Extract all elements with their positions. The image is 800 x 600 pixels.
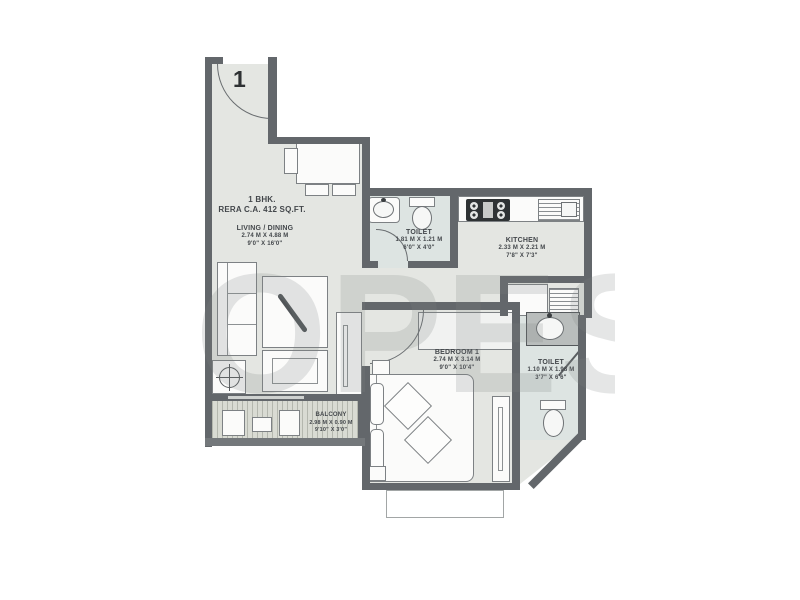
room-dim-ft: 7'8" X 7'3" bbox=[490, 253, 554, 261]
outer-wall-left bbox=[205, 57, 212, 447]
balcony-bottom-wall bbox=[205, 438, 365, 446]
living-label: LIVING / DINING 2.74 M X 4.88 M 9'0" X 1… bbox=[218, 224, 312, 249]
sink-bowl bbox=[561, 202, 577, 217]
utility-left-wall bbox=[500, 276, 508, 316]
armchair-seat bbox=[272, 358, 318, 384]
table-decor-icon bbox=[277, 293, 308, 333]
room-dim-ft: 9'0" X 10'4" bbox=[412, 365, 502, 373]
room-dim-ft: 9'0" X 16'0" bbox=[218, 241, 312, 249]
wc1-bowl-icon bbox=[412, 206, 432, 230]
dining-table bbox=[296, 140, 360, 184]
pillow bbox=[370, 429, 384, 471]
balcony-label: BALCONY 2.98 M X 0.90 M 9'10" X 3'0" bbox=[302, 412, 360, 434]
decor-cross-v bbox=[229, 364, 230, 391]
room-name: KITCHEN bbox=[490, 236, 554, 245]
sofa-back-line bbox=[227, 263, 228, 355]
sofa-cushion-line-2 bbox=[227, 324, 256, 325]
tv-panel bbox=[343, 325, 348, 387]
utility-sink bbox=[549, 288, 579, 315]
balcony-seat-1 bbox=[222, 410, 245, 436]
living-top-wall bbox=[268, 137, 370, 144]
room-dim-ft: 6'0" X 4'0" bbox=[388, 245, 450, 253]
pillow bbox=[370, 383, 384, 425]
hob-center-tray bbox=[483, 202, 493, 218]
washbasin2-icon bbox=[536, 317, 564, 340]
bedroom-label: BEDROOM 1 2.74 M X 3.14 M 9'0" X 10'4" bbox=[412, 348, 502, 373]
wardrobe bbox=[418, 312, 514, 350]
room-name: LIVING / DINING bbox=[218, 224, 312, 233]
tv-unit bbox=[336, 312, 362, 400]
entrance-door-number: 1 bbox=[233, 66, 246, 93]
kitchen-bottom-wall bbox=[502, 276, 584, 283]
room-name: BEDROOM 1 bbox=[412, 348, 502, 357]
room-dim-m: 2.98 M X 0.90 M bbox=[302, 420, 360, 427]
rera-area-label: RERA C.A. 412 SQ.FT. bbox=[214, 205, 310, 215]
room-dim-m: 1.10 M X 1.98 M bbox=[520, 367, 582, 375]
room-name: TOILET bbox=[388, 228, 450, 237]
basin-tap-dot bbox=[381, 198, 386, 202]
room-dim-m: 2.74 M X 4.88 M bbox=[218, 233, 312, 241]
sofa-cushion-line-1 bbox=[227, 293, 256, 294]
dining-chair-bottom-2 bbox=[332, 184, 356, 196]
coffee-table bbox=[262, 276, 328, 348]
burner-icon bbox=[497, 211, 505, 219]
room-dim-m: 1.81 M X 1.21 M bbox=[388, 237, 450, 245]
corridor-right-wall bbox=[268, 57, 277, 144]
room-dim-m: 2.33 M X 2.21 M bbox=[490, 245, 554, 253]
toilet1-bottom-wall-left bbox=[362, 261, 378, 268]
living-right-wall bbox=[362, 137, 370, 268]
bedroom-top-wall bbox=[362, 302, 520, 310]
corridor-top-wall-stub-left bbox=[205, 57, 223, 64]
basin2-tap-dot bbox=[547, 313, 552, 318]
room-dim-ft: 9'10" X 3'0" bbox=[302, 427, 360, 434]
kitchen-sink bbox=[538, 199, 580, 221]
room-dim-ft: 3'7" X 6'6" bbox=[520, 375, 582, 383]
burner-icon bbox=[470, 202, 478, 210]
burner-icon bbox=[497, 202, 505, 210]
toilet2-label: TOILET 1.10 M X 1.98 M 3'7" X 6'6" bbox=[520, 358, 582, 383]
toilet1-right-wall bbox=[450, 196, 458, 268]
dresser-panel bbox=[498, 407, 503, 471]
dresser bbox=[492, 396, 510, 482]
armchair bbox=[262, 350, 328, 392]
toilet1-bottom-wall-right bbox=[408, 261, 458, 268]
balcony-seat-2 bbox=[279, 410, 300, 436]
unit-type-label: 1 BHK. bbox=[214, 195, 310, 205]
balcony-table bbox=[252, 417, 272, 432]
room-dim-m: 2.74 M X 3.14 M bbox=[412, 357, 502, 365]
room-name: TOILET bbox=[520, 358, 582, 367]
block-top-wall bbox=[362, 188, 592, 196]
toilet1-label: TOILET 1.81 M X 1.21 M 6'0" X 4'0" bbox=[388, 228, 450, 253]
bedroom-bottom-wall bbox=[362, 483, 520, 490]
burner-icon bbox=[470, 211, 478, 219]
room-name: BALCONY bbox=[302, 412, 360, 420]
sofa bbox=[217, 262, 257, 356]
side-table bbox=[212, 360, 246, 394]
kitchen-label: KITCHEN 2.33 M X 2.21 M 7'8" X 7'3" bbox=[490, 236, 554, 261]
unit-title: 1 BHK. RERA C.A. 412 SQ.FT. bbox=[214, 195, 310, 216]
nightstand-top bbox=[372, 360, 390, 375]
sliding-door bbox=[228, 396, 304, 399]
dining-chair-left bbox=[284, 148, 298, 174]
floor-plan: 1 bbox=[0, 0, 800, 600]
kitchen-hob bbox=[466, 199, 510, 221]
projection-ledge bbox=[386, 490, 504, 518]
wc2-bowl-icon bbox=[543, 409, 564, 437]
bedroom-right-wall bbox=[512, 302, 520, 490]
washbasin-icon bbox=[373, 201, 394, 218]
kitchen-right-wall bbox=[584, 188, 592, 318]
